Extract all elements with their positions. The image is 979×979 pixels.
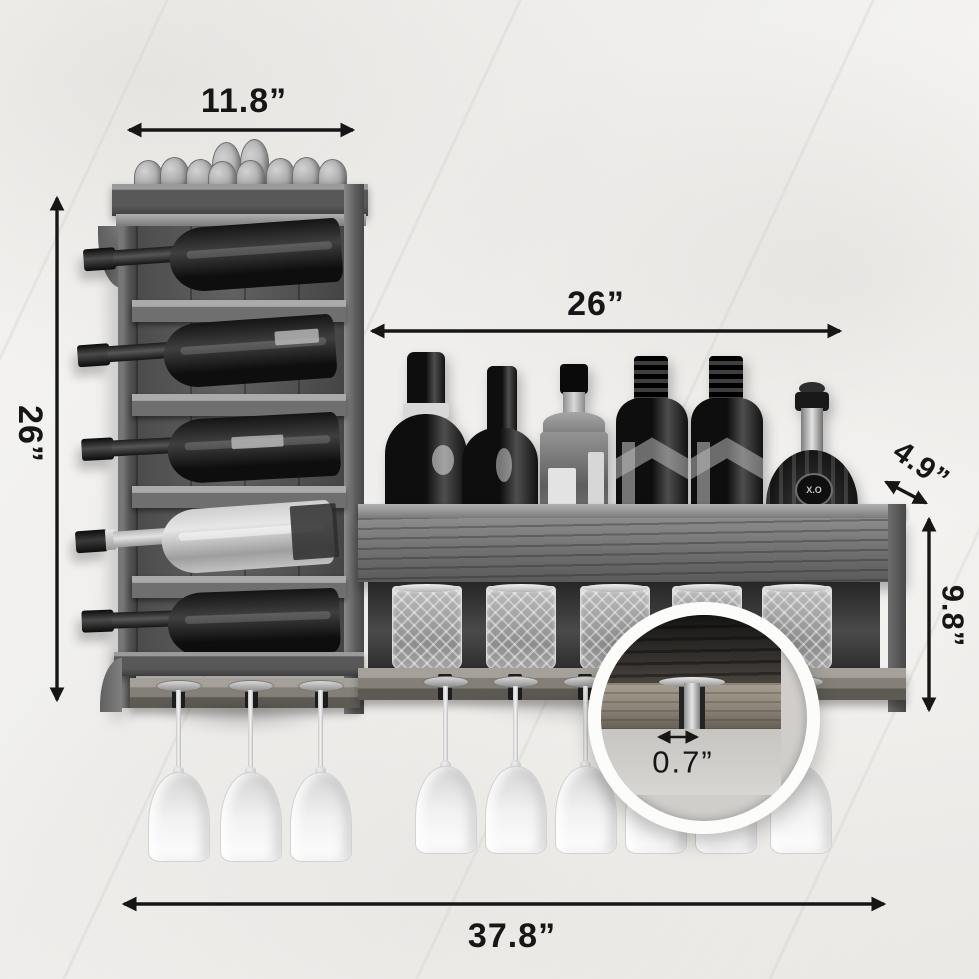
dimension-label-left-height: 26” — [13, 405, 47, 463]
tumbler-1 — [392, 586, 462, 670]
hanging-glass-right-stem — [513, 686, 518, 766]
shelf-top-edge — [358, 504, 906, 518]
xo-label: X.O — [795, 473, 833, 507]
hanging-glass-right-stem — [583, 686, 588, 766]
product-dimension-image: X.O — [0, 0, 979, 979]
dimension-label-slot-width: 0.7” — [652, 747, 713, 778]
dimension-label-shelf-width: 26” — [567, 287, 625, 321]
dimension-label-total-width: 37.8” — [468, 919, 556, 953]
hanging-glass-right-stem — [443, 686, 448, 766]
whiskey-label-side — [588, 452, 604, 512]
zoom-detail-circle — [588, 602, 820, 834]
magnified-shelf-underside — [601, 615, 781, 683]
display-shelf-right: X.O — [0, 0, 979, 979]
magnified-glass-stem — [684, 683, 700, 733]
dimension-label-top-width: 11.8” — [201, 84, 287, 118]
hanging-glass-right-bowl — [485, 766, 547, 854]
dimension-label-shelf-height: 9.8” — [938, 585, 969, 648]
shelf-front-board — [358, 518, 906, 582]
tumbler-2 — [486, 586, 556, 670]
hanging-glass-right-bowl — [415, 766, 477, 854]
